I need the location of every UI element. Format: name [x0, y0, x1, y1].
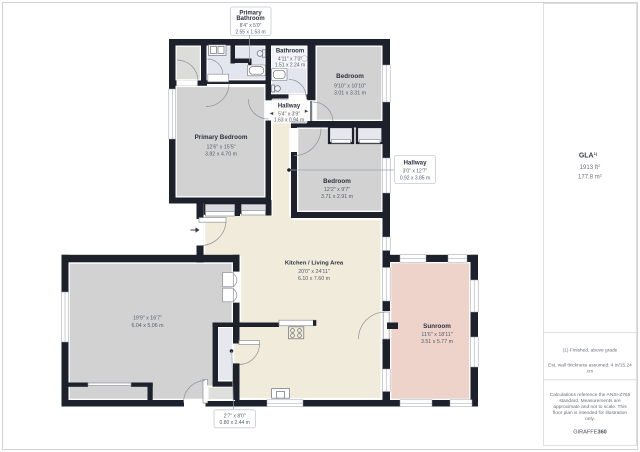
svg-text:0.80 x 2.44 m: 0.80 x 2.44 m: [220, 420, 250, 426]
svg-text:Sunroom: Sunroom: [423, 323, 451, 330]
svg-text:Kitchen / Living Area: Kitchen / Living Area: [285, 261, 344, 267]
svg-text:Hallway: Hallway: [403, 160, 427, 167]
svg-text:3.82 x 4.70 m: 3.82 x 4.70 m: [205, 152, 238, 158]
svg-text:9'10" x 10'10": 9'10" x 10'10": [334, 84, 366, 90]
svg-text:Primary Bedroom: Primary Bedroom: [195, 134, 248, 141]
svg-text:19'9" x 16'7": 19'9" x 16'7": [133, 316, 162, 322]
svg-text:Bedroom: Bedroom: [336, 73, 364, 80]
svg-text:standard. Measurements are: standard. Measurements are: [559, 398, 621, 404]
svg-text:cm: cm: [587, 370, 593, 375]
svg-text:11'6" x 18'11": 11'6" x 18'11": [421, 332, 452, 338]
svg-text:approximate and not to scale.: approximate and not to scale. This: [553, 404, 627, 410]
svg-text:floor plan is intended for ill: floor plan is intended for illustration: [553, 410, 627, 416]
svg-text:3.51 x 5.77 m: 3.51 x 5.77 m: [421, 339, 454, 345]
svg-text:3.01 x 3.31 m: 3.01 x 3.31 m: [334, 91, 367, 97]
svg-text:1.51 x 2.24 m: 1.51 x 2.24 m: [275, 63, 305, 69]
svg-text:6.10 x 7.60 m: 6.10 x 7.60 m: [298, 276, 331, 282]
svg-text:6.04 x 5.06 m: 6.04 x 5.06 m: [131, 323, 164, 329]
svg-text:12'2" x 9'7": 12'2" x 9'7": [324, 187, 350, 193]
svg-text:Hallway: Hallway: [278, 104, 301, 110]
svg-text:2'7" x 8'0": 2'7" x 8'0": [224, 414, 246, 420]
svg-text:only.: only.: [585, 416, 595, 422]
svg-text:3.71 x 2.91 m: 3.71 x 2.91 m: [321, 194, 354, 200]
svg-text:Bathroom: Bathroom: [236, 16, 264, 22]
svg-text:GIRAFFE360: GIRAFFE360: [573, 430, 607, 436]
svg-text:Calculations reference the ANS: Calculations reference the ANSI-Z765: [550, 392, 631, 398]
svg-text:8'4" x 5'0": 8'4" x 5'0": [240, 23, 262, 29]
svg-text:1.63 x 0.94 m: 1.63 x 0.94 m: [274, 118, 304, 124]
svg-text:3'0" x 12'7": 3'0" x 12'7": [403, 169, 428, 175]
svg-text:(1) Finished, above grade: (1) Finished, above grade: [563, 348, 618, 354]
svg-text:Bathroom: Bathroom: [276, 49, 304, 55]
svg-text:20'0" x 24'11": 20'0" x 24'11": [298, 269, 330, 275]
svg-text:Est. wall thickness assumed: 4: Est. wall thickness assumed: 4 in/15.24: [548, 363, 632, 369]
svg-text:177.8 m2: 177.8 m2: [578, 173, 603, 181]
svg-text:Bedroom: Bedroom: [323, 178, 351, 185]
svg-text:1913 ft2: 1913 ft2: [580, 163, 601, 171]
svg-text:12'6" x 15'5": 12'6" x 15'5": [206, 145, 235, 151]
svg-text:0.92 x 3.85 m: 0.92 x 3.85 m: [400, 176, 430, 182]
svg-text:2.55 x 1.53 m: 2.55 x 1.53 m: [235, 29, 265, 35]
